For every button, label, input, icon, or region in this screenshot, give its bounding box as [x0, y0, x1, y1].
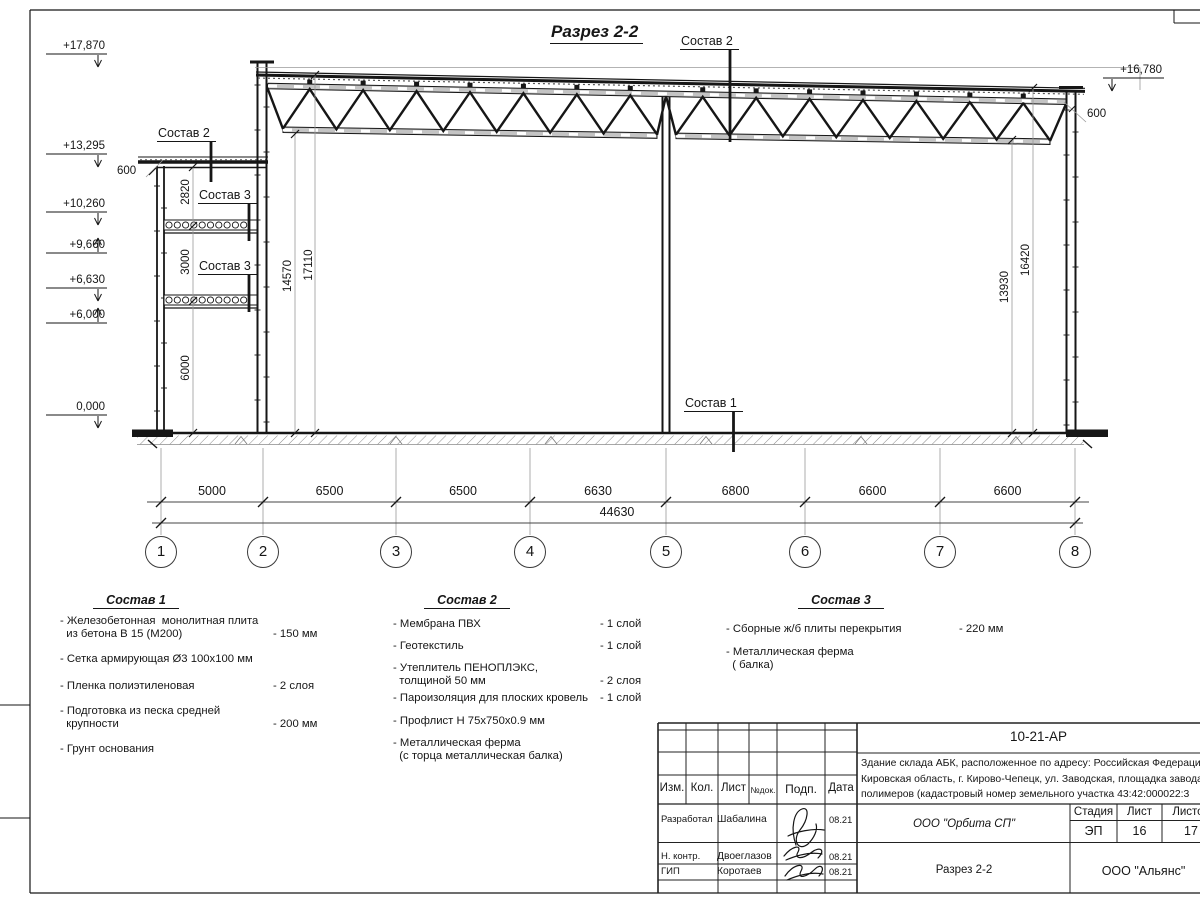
- composition-list: Состав 2- Мембрана ПВХ- 1 слой- Геотекст…: [393, 588, 653, 773]
- elevation-label: +17,870: [47, 40, 105, 52]
- composition-item: - Подготовка из песка средней крупности-…: [60, 705, 325, 730]
- titleblock-stage-label: Стадия: [1071, 806, 1116, 818]
- composition-item-value: - 1 слой: [600, 640, 641, 653]
- axis-bubble: 1: [145, 536, 177, 568]
- titleblock-header-col: Кол.: [686, 782, 718, 794]
- small-dimension-label: 600: [1087, 108, 1106, 120]
- drawing-title: Разрез 2-2: [550, 22, 643, 44]
- titleblock-sheets-value: 17: [1163, 824, 1200, 838]
- composition-item-text: - Сетка армирующая Ø3 100х100 мм: [60, 653, 325, 666]
- titleblock-header-col: №док.: [749, 785, 777, 795]
- composition-item-value: - 1 слой: [600, 618, 641, 631]
- titleblock-section-name: Разрез 2-2: [858, 864, 1070, 876]
- vertical-dimension-label: 3000: [180, 232, 192, 292]
- hall-structure: [250, 62, 1140, 433]
- composition-title: Состав 1: [93, 593, 179, 609]
- composition-item-value: - 200 мм: [273, 718, 317, 731]
- elevation-label: +13,295: [47, 140, 105, 152]
- vertical-dimension-label: 6000: [180, 338, 192, 398]
- composition-item-text: - Грунт основания: [60, 743, 325, 756]
- composition-item: - Металлическая ферма ( балка): [726, 646, 1006, 671]
- titleblock-sheets-label: Листов: [1163, 806, 1200, 818]
- composition-item: - Утеплитель ПЕНОПЛЭКС, толщиной 50 мм- …: [393, 662, 653, 687]
- elevation-label: +10,260: [47, 198, 105, 210]
- titleblock-header-col: Дата: [825, 782, 857, 794]
- titleblock-role: Разработал: [661, 814, 713, 825]
- floor-slab: [132, 430, 1108, 449]
- elevation-label: +9,660: [47, 239, 105, 251]
- titleblock-company: ООО "Орбита СП": [858, 818, 1070, 830]
- composition-item: - Пароизоляция для плоских кровель- 1 сл…: [393, 692, 653, 705]
- composition-item: - Мембрана ПВХ- 1 слой: [393, 618, 653, 631]
- titleblock-header-col: Подп.: [777, 782, 825, 796]
- span-dimension-label: 6800: [701, 484, 771, 498]
- signature-scribbles: [784, 809, 824, 880]
- composition-item-text: - Металлическая ферма ( балка): [726, 646, 1006, 671]
- titleblock-date: 08.21: [829, 815, 852, 825]
- titleblock-contractor: ООО "Альянс": [1071, 864, 1200, 878]
- span-dimension-label: 6600: [973, 484, 1043, 498]
- material-callout-label: Состав 3: [198, 188, 257, 204]
- vertical-dimension-label: 17110: [303, 235, 315, 295]
- titleblock-name: Двоеглазов: [717, 851, 772, 862]
- axis-bubble: 5: [650, 536, 682, 568]
- elevation-label: +16,780: [1104, 64, 1162, 76]
- axis-bubble: 8: [1059, 536, 1091, 568]
- titleblock-stage-value: ЭП: [1071, 824, 1116, 838]
- composition-item-value: - 1 слой: [600, 692, 641, 705]
- composition-item: - Пленка полиэтиленовая- 2 слоя: [60, 680, 325, 693]
- total-dimension-label: 44630: [582, 505, 652, 519]
- vertical-dimension-label: 14570: [282, 246, 294, 306]
- material-callout-label: Состав 3: [198, 259, 257, 275]
- elevation-marks: [46, 54, 1164, 428]
- composition-item-value: - 2 слоя: [600, 675, 641, 688]
- elevation-label: 0,000: [47, 401, 105, 413]
- titleblock-sheet-label: Лист: [1118, 806, 1161, 818]
- elevation-label: +6,630: [47, 274, 105, 286]
- material-callout-label: Состав 2: [680, 34, 739, 50]
- composition-title: Состав 2: [424, 593, 510, 609]
- span-dimension-label: 6500: [295, 484, 365, 498]
- vertical-dimension-label: 16420: [1020, 230, 1032, 290]
- axis-bubble: 7: [924, 536, 956, 568]
- composition-list: Состав 3- Сборные ж/б плиты перекрытия- …: [726, 588, 1006, 773]
- titleblock-doc-number: 10-21-АР: [857, 729, 1200, 744]
- material-callout-label: Состав 2: [157, 126, 216, 142]
- composition-item: - Грунт основания: [60, 743, 325, 756]
- axis-bubble: 2: [247, 536, 279, 568]
- titleblock-name: Шабалина: [717, 814, 767, 825]
- span-dimension-label: 5000: [177, 484, 247, 498]
- composition-list: Состав 1- Железобетонная монолитная плит…: [60, 588, 325, 773]
- composition-item: - Сетка армирующая Ø3 100х100 мм: [60, 653, 325, 666]
- drawing-sheet: Разрез 2-2 +17,870+13,295+10,260+9,660+6…: [0, 0, 1200, 900]
- titleblock-project-description: Здание склада АБК, расположенное по адре…: [861, 756, 1200, 803]
- titleblock-date: 08.21: [829, 867, 852, 877]
- composition-item-text: - Металлическая ферма (с торца металличе…: [393, 737, 653, 762]
- composition-item: - Сборные ж/б плиты перекрытия- 220 мм: [726, 623, 1006, 636]
- composition-item: - Профлист Н 75х750х0.9 мм: [393, 715, 653, 728]
- composition-item-text: - Профлист Н 75х750х0.9 мм: [393, 715, 653, 728]
- composition-item-value: - 2 слоя: [273, 680, 314, 693]
- span-dimension-label: 6500: [428, 484, 498, 498]
- axis-bubble: 4: [514, 536, 546, 568]
- composition-item: - Металлическая ферма (с торца металличе…: [393, 737, 653, 762]
- composition-item: - Железобетонная монолитная плита из бет…: [60, 615, 325, 640]
- axis-bubble: 3: [380, 536, 412, 568]
- vertical-dimension-label: 2820: [180, 162, 192, 222]
- titleblock-name: Коротаев: [717, 866, 761, 877]
- titleblock-role: Н. контр.: [661, 851, 700, 862]
- titleblock-date: 08.21: [829, 852, 852, 862]
- span-dimension-label: 6630: [563, 484, 633, 498]
- composition-item: - Геотекстиль- 1 слой: [393, 640, 653, 653]
- vertical-dimension-label: 13930: [999, 257, 1011, 317]
- material-callout-label: Состав 1: [684, 396, 743, 412]
- span-dimension-label: 6600: [838, 484, 908, 498]
- elevation-label: +6,000: [47, 309, 105, 321]
- composition-item-value: - 150 мм: [273, 628, 317, 641]
- composition-title: Состав 3: [798, 593, 884, 609]
- titleblock-role: ГИП: [661, 866, 680, 877]
- small-dimension-label: 600: [117, 165, 136, 177]
- titleblock-sheet-value: 16: [1118, 824, 1161, 838]
- axis-bubble: 6: [789, 536, 821, 568]
- titleblock-header-col: Лист: [718, 782, 749, 794]
- composition-item-value: - 220 мм: [959, 623, 1003, 636]
- titleblock-header-col: Изм.: [658, 782, 686, 794]
